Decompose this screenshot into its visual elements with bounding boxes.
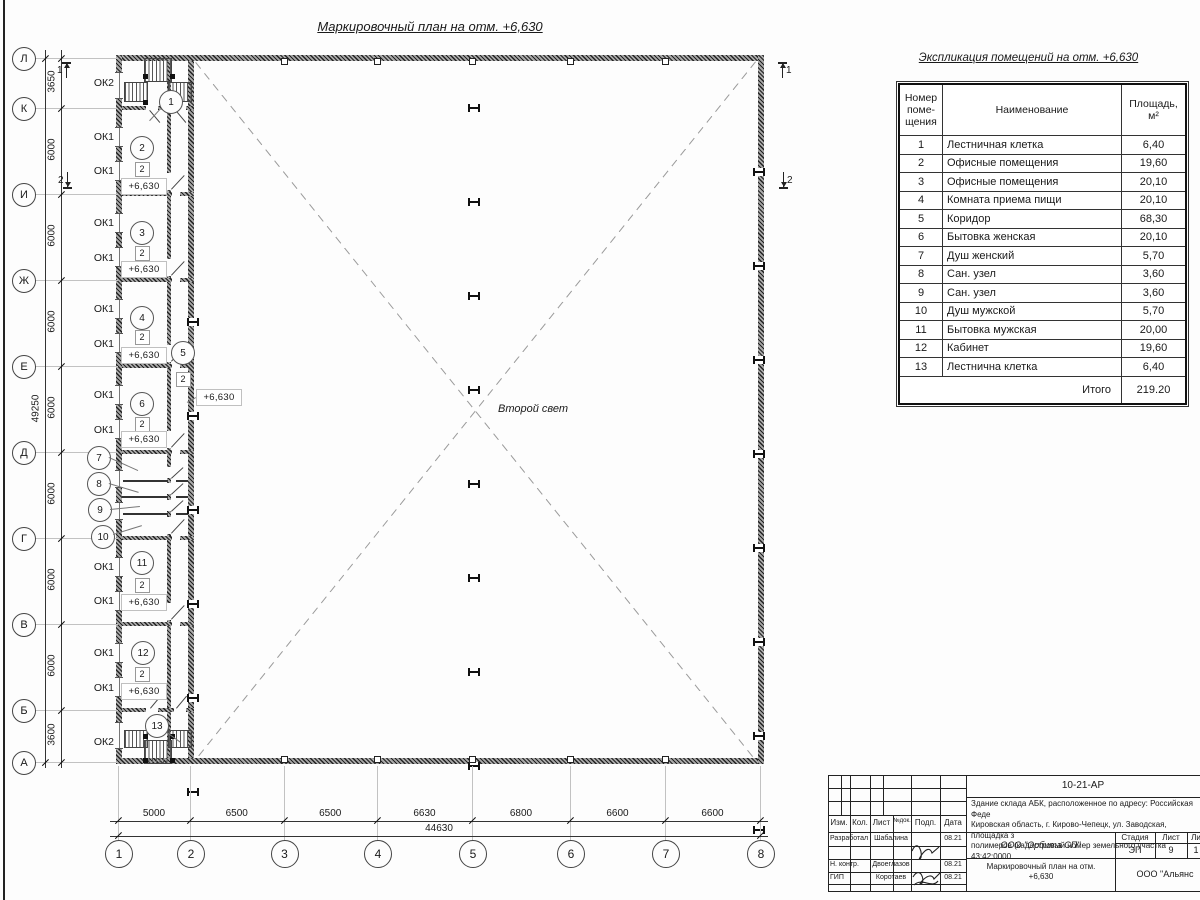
- titleblock-date: 08.21: [940, 835, 966, 842]
- title-block: 10-21-АРЗдание склада АБК, расположенное…: [0, 0, 1200, 900]
- titleblock-line: [828, 859, 966, 860]
- titleblock-name: Двоеглазов: [871, 861, 911, 868]
- titleblock-date: 08.21: [940, 874, 966, 881]
- titleblock-line: [828, 872, 966, 873]
- titleblock-sheet-title: Маркировочный план на отм. +6,630: [971, 862, 1111, 882]
- titleblock-role: Разработал: [830, 835, 870, 842]
- drawing-sheet: Маркировочный план на отм. +6,630 Экспли…: [0, 0, 1200, 900]
- titleblock-name: Шабалина: [871, 835, 911, 842]
- titleblock-line: [828, 846, 966, 847]
- titleblock-name: Коротаев: [871, 874, 911, 881]
- titleblock-stage-header: Ли: [1178, 833, 1200, 842]
- titleblock-org2: ООО "Альянс: [1120, 869, 1200, 879]
- titleblock-role: Н. контр.: [830, 861, 870, 868]
- titleblock-line: [828, 775, 1200, 776]
- titleblock-line: [966, 797, 1200, 798]
- titleblock-line: [828, 832, 966, 833]
- titleblock-date: 08.21: [940, 861, 966, 868]
- titleblock-line: [828, 801, 966, 802]
- titleblock-stage-header: Стадия: [1117, 833, 1153, 842]
- titleblock-stage-value: ЭП: [1117, 845, 1153, 855]
- second-light-label: Второй свет: [498, 403, 568, 415]
- titleblock-header-cell: Подп.: [912, 818, 940, 827]
- titleblock-line: [828, 891, 1200, 892]
- titleblock-header-cell: Дата: [939, 818, 967, 827]
- titleblock-line: [841, 775, 842, 815]
- titleblock-line: [828, 788, 966, 789]
- titleblock-doc-number: 10-21-АР: [966, 780, 1200, 791]
- titleblock-org: ООО "Орбита СП": [966, 840, 1115, 850]
- titleblock-role: ГИП: [830, 874, 870, 881]
- titleblock-line: [828, 815, 966, 816]
- titleblock-line: [828, 884, 966, 885]
- titleblock-line: [883, 775, 884, 815]
- titleblock-stage-value: 1: [1178, 845, 1200, 855]
- signature-icon: [908, 833, 942, 889]
